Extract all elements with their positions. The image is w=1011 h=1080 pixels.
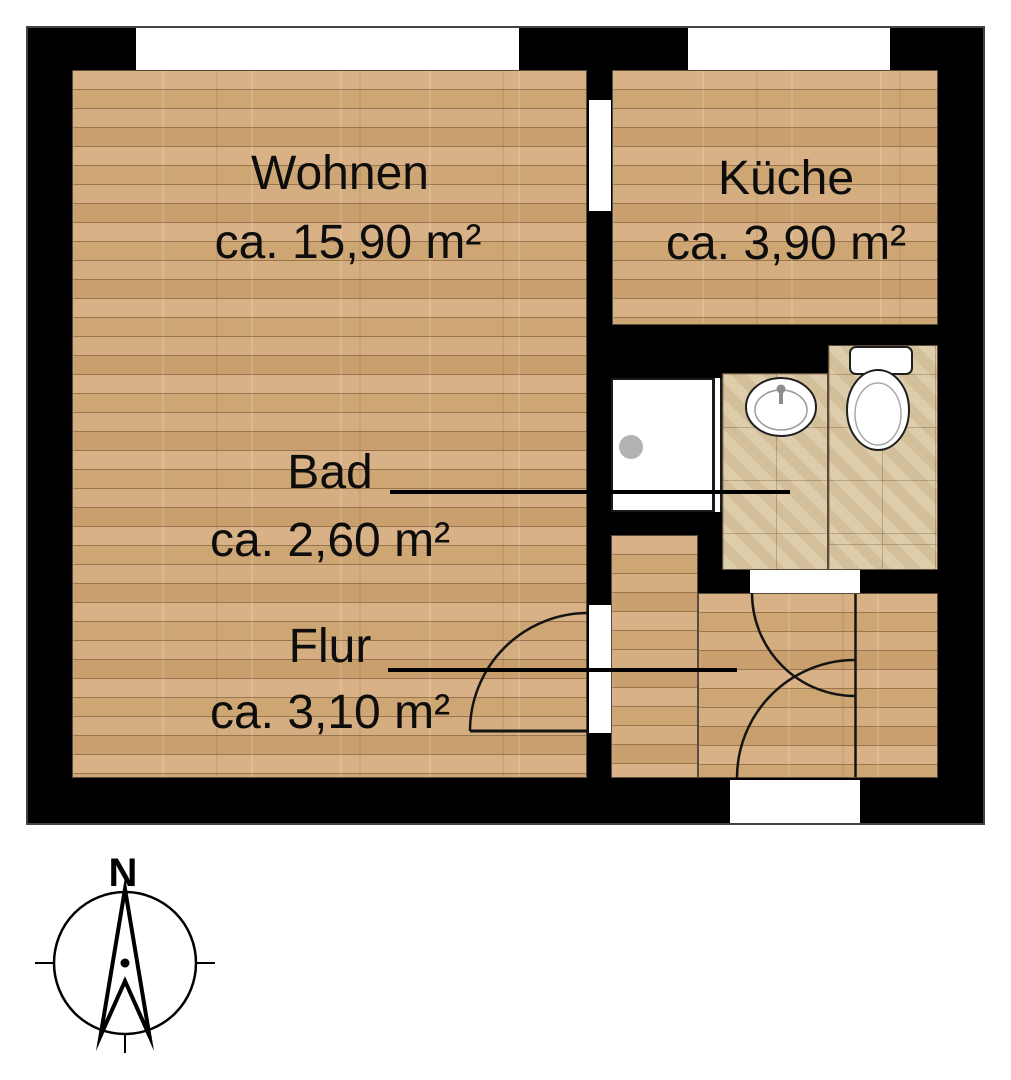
room-area-bad: ca. 2,60 m² — [210, 517, 450, 565]
room-name-kueche: Küche — [718, 155, 854, 203]
window-wohnen — [136, 28, 519, 70]
passage-wohnen-kueche — [589, 100, 611, 211]
room-area-kueche: ca. 3,90 m² — [666, 220, 906, 268]
room-name-bad: Bad — [287, 449, 372, 497]
compass-needle-icon — [101, 889, 150, 1036]
shower-drain-icon — [619, 435, 643, 459]
door-opening-bad — [750, 570, 860, 593]
room-name-wohnen: Wohnen — [251, 150, 429, 198]
door-opening-entrance — [730, 780, 860, 823]
room-name-flur: Flur — [289, 623, 372, 671]
room-area-wohnen: ca. 15,90 m² — [215, 219, 482, 267]
floor-flur-main — [698, 593, 938, 778]
compass-center-dot — [121, 959, 130, 968]
room-area-flur: ca. 3,10 m² — [210, 689, 450, 737]
compass-circle — [54, 892, 196, 1034]
door-opening-wohnen-flur — [589, 605, 611, 733]
compass-rose: N — [35, 851, 215, 1053]
floor-bad-tiles-right — [828, 345, 938, 570]
compass-north-label: N — [109, 851, 138, 895]
shower-glass-panel — [713, 378, 722, 512]
floorplan-page: { "plan": { "rooms": [ { "name": "Wohnen… — [0, 0, 1011, 1080]
shower — [611, 378, 714, 512]
floor-flur-strip — [611, 535, 698, 778]
floor-bad-tiles-left — [722, 373, 828, 570]
window-kueche — [688, 28, 890, 70]
